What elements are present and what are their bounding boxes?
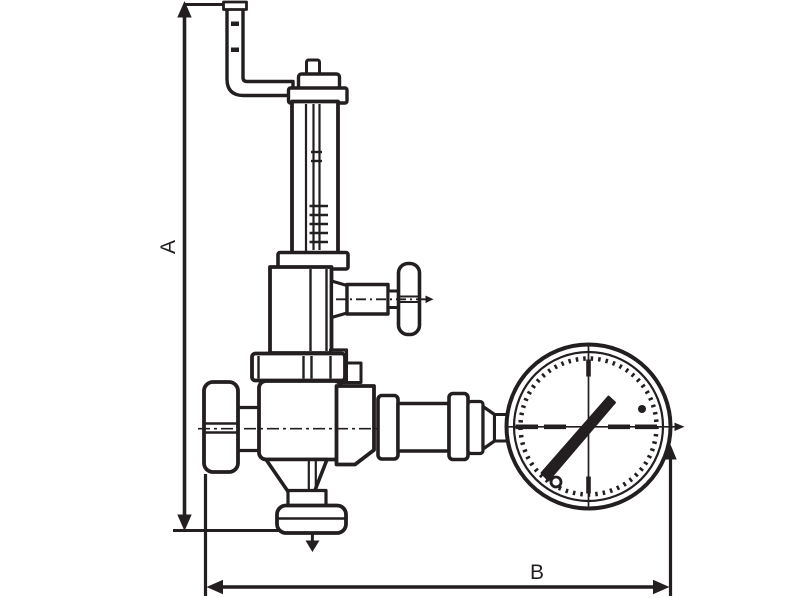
- union-ring-3: [468, 402, 483, 454]
- dim-b-label: B: [530, 561, 544, 584]
- dim-b-arrow-left: [207, 580, 224, 594]
- union-ring-2: [449, 394, 468, 460]
- valve-technical-drawing: A: [0, 0, 800, 598]
- gauge-centerline-arrow: [675, 423, 685, 431]
- dim-a-arrow-down: [177, 515, 191, 532]
- branch-centerline-arrow: [426, 296, 434, 304]
- drain-arrow-head: [306, 541, 320, 553]
- body-bottom-cone: [266, 460, 327, 492]
- upper-body-shell: [270, 267, 332, 353]
- gauge-face-dot: [638, 405, 646, 413]
- reducer-cone: [483, 407, 495, 450]
- right-column-b: [347, 363, 362, 383]
- drawing-canvas: A: [0, 0, 800, 598]
- body-main: [259, 381, 342, 460]
- nipple-pipe: [398, 404, 449, 452]
- side-handle-branch: [332, 264, 434, 335]
- pipe-tick-1: [231, 22, 239, 27]
- pressure-gauge: [507, 345, 685, 509]
- handwheel-assembly: [204, 382, 260, 472]
- body-right-section: [337, 386, 375, 465]
- bonnet-cap: [289, 60, 348, 103]
- gauge-needle-pivot: [551, 477, 561, 487]
- outlet-connector: [378, 394, 508, 460]
- flange: [252, 350, 361, 383]
- dim-a-label: A: [157, 240, 180, 254]
- handwheel: [204, 382, 238, 472]
- exhaust-pipe: [224, 2, 294, 96]
- pipe-end-cap: [224, 2, 247, 10]
- pipe-tick-2: [231, 48, 239, 53]
- spring-housing: [292, 102, 338, 257]
- bottom-union: [277, 491, 346, 553]
- dim-b-arrow-right: [653, 580, 670, 594]
- union-ring-1: [378, 396, 398, 460]
